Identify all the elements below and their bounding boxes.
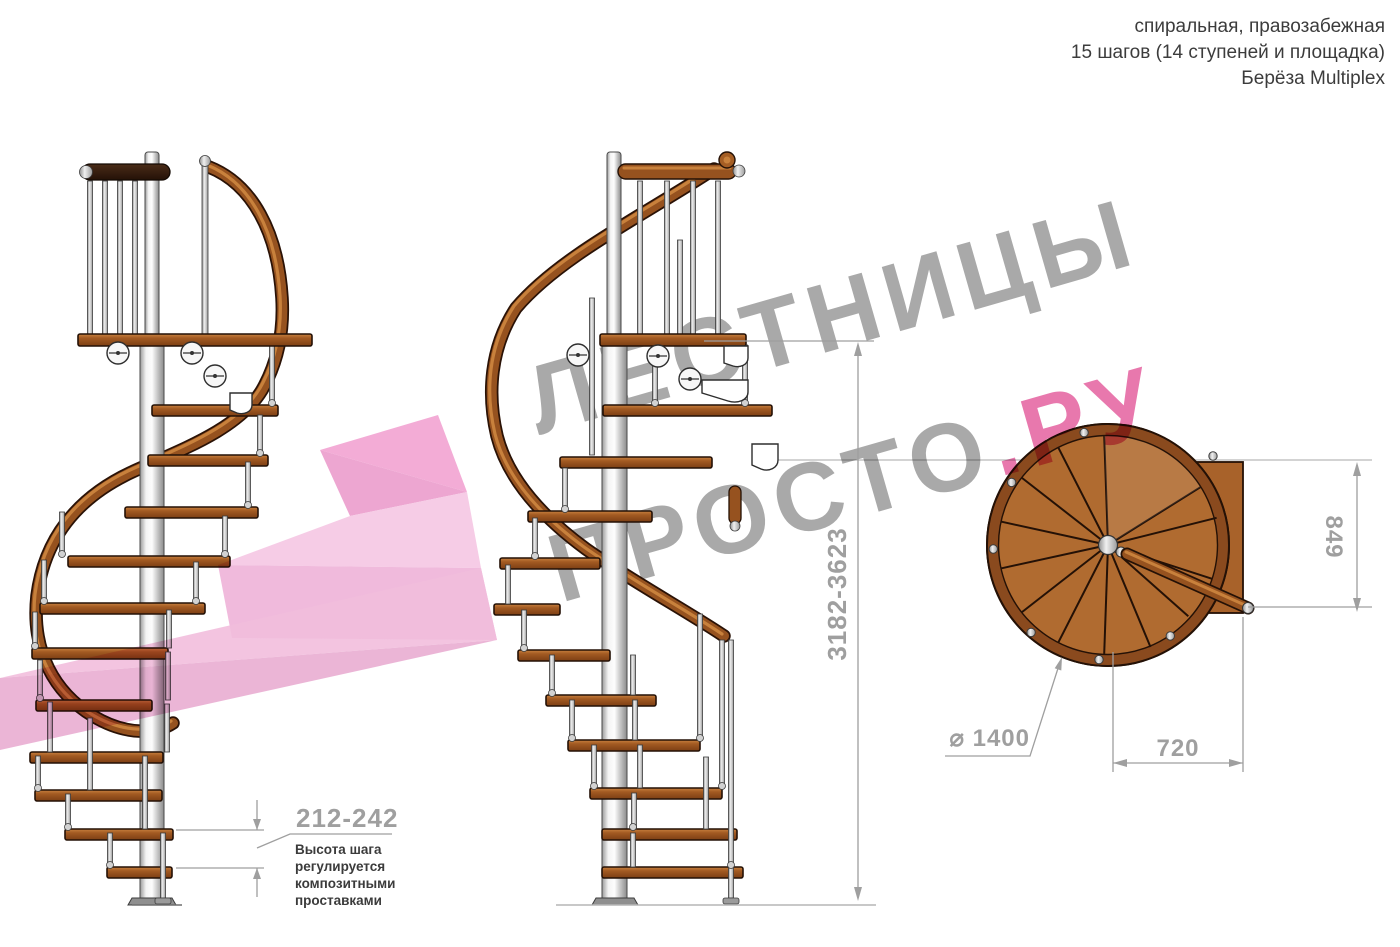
promo-arrow-graphic bbox=[0, 0, 1400, 947]
drawing-sheet: ЛЕСТНИЦЫ ПРОСТО.РУ .rod{fill:url(#rodG2)… bbox=[0, 0, 1400, 947]
